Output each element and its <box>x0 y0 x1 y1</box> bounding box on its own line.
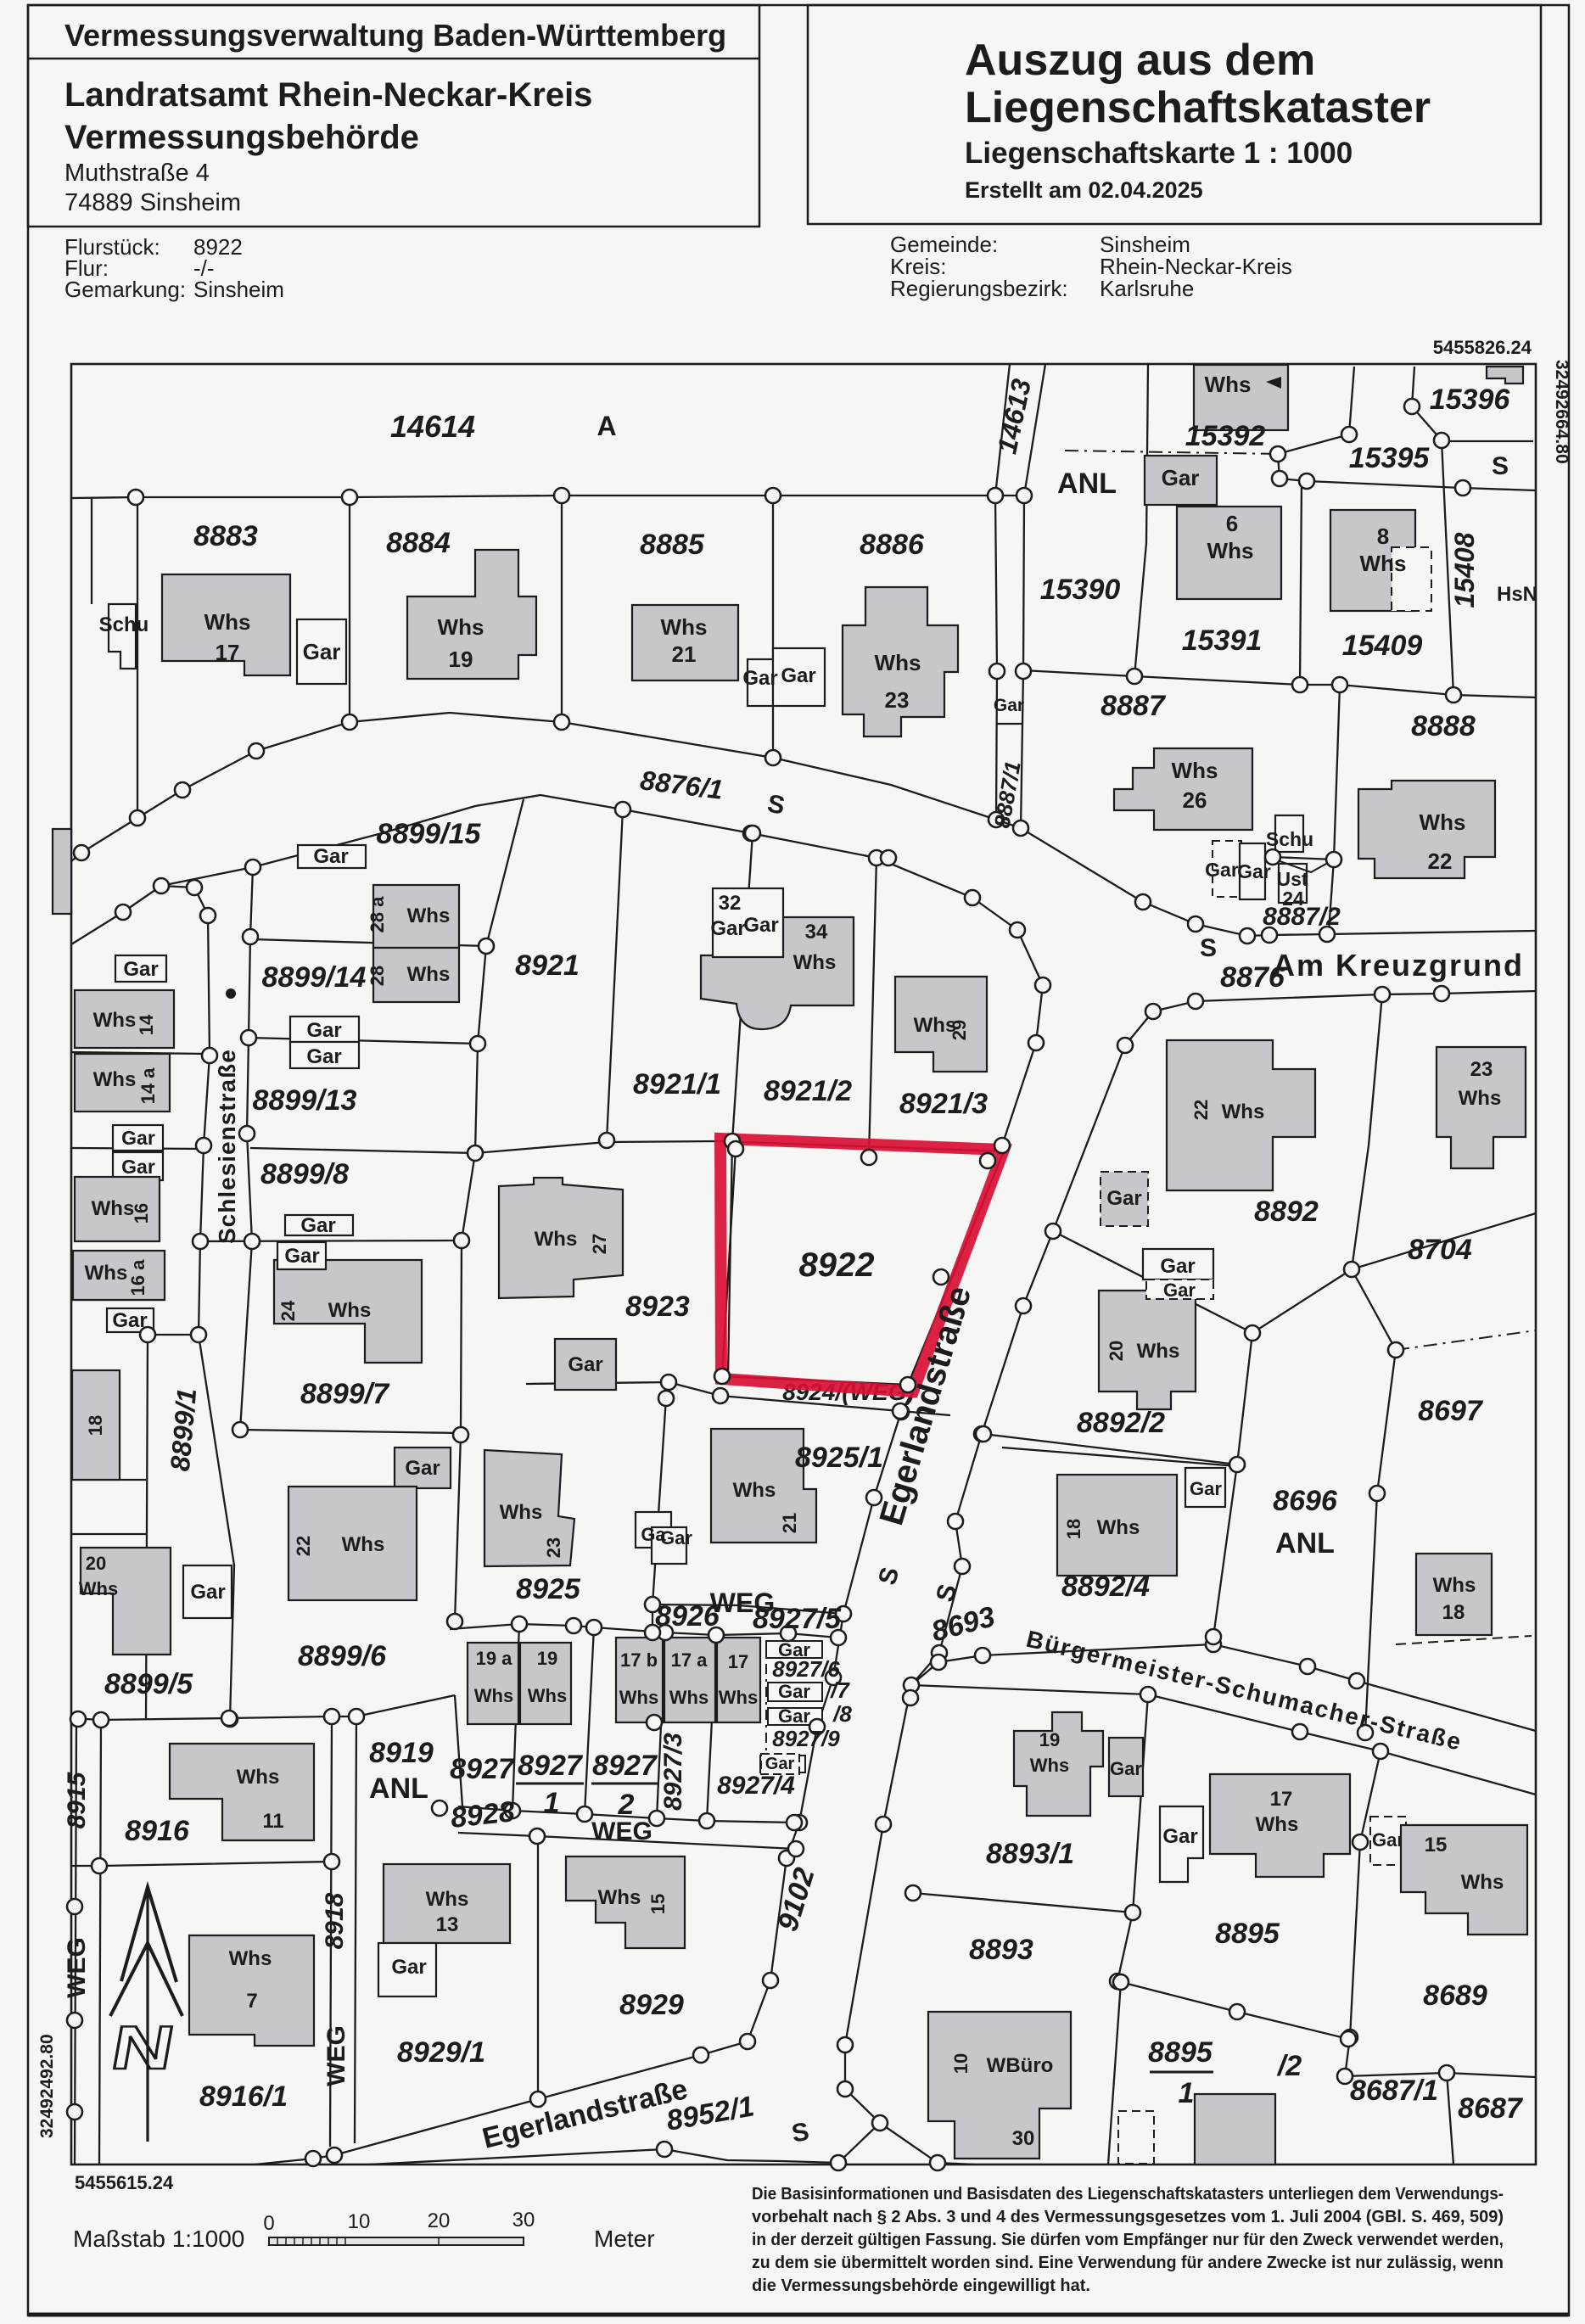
svg-text:18: 18 <box>1442 1601 1465 1624</box>
svg-text:Gar: Gar <box>1162 465 1200 490</box>
svg-text:14614: 14614 <box>390 409 475 444</box>
svg-text:HsN: HsN <box>1497 583 1537 606</box>
svg-text:Gar: Gar <box>1162 1825 1197 1848</box>
svg-text:Whs: Whs <box>500 1501 543 1524</box>
svg-text:Meter: Meter <box>594 2226 655 2252</box>
svg-text:N: N <box>106 2013 180 2081</box>
svg-text:Whs: Whs <box>733 1479 776 1502</box>
svg-text:32: 32 <box>719 892 742 915</box>
svg-text:vorbehalt nach § 2 Abs. 3 und: vorbehalt nach § 2 Abs. 3 und 4 des Verm… <box>752 2208 1504 2226</box>
svg-text:8927/5: 8927/5 <box>753 1603 842 1635</box>
svg-text:Gar: Gar <box>1190 1478 1222 1499</box>
svg-text:8925: 8925 <box>516 1573 581 1605</box>
svg-text:Whs: Whs <box>1256 1813 1299 1836</box>
svg-text:WEG: WEG <box>591 1817 652 1845</box>
svg-text:zu dem sie übermittelt worden: zu dem sie übermittelt worden sind. Eine… <box>752 2254 1504 2272</box>
svg-text:die Vermessungsbehörde eingewi: die Vermessungsbehörde eingewilligt hat. <box>752 2276 1090 2295</box>
svg-text:Whs: Whs <box>85 1262 128 1285</box>
svg-text:8887: 8887 <box>1101 690 1167 722</box>
svg-text:Gar: Gar <box>1372 1829 1404 1851</box>
svg-text:Gar: Gar <box>568 1353 602 1376</box>
svg-text:Gar: Gar <box>743 914 778 937</box>
svg-text:8921/1: 8921/1 <box>633 1068 721 1100</box>
svg-text:17: 17 <box>216 640 240 665</box>
svg-text:10: 10 <box>950 2053 972 2074</box>
svg-text:8899/7: 8899/7 <box>300 1378 390 1410</box>
svg-text:21: 21 <box>779 1513 800 1533</box>
svg-text:Gar: Gar <box>1205 859 1239 881</box>
svg-text:26: 26 <box>1183 787 1207 813</box>
svg-text:30: 30 <box>512 2209 535 2232</box>
svg-text:Gar: Gar <box>778 1681 810 1702</box>
svg-text:19: 19 <box>449 647 473 672</box>
svg-text:27: 27 <box>589 1234 610 1254</box>
svg-text:Gar: Gar <box>121 1156 155 1178</box>
svg-text:20: 20 <box>86 1553 106 1574</box>
svg-text:Gar: Gar <box>303 639 341 664</box>
svg-text:Gar: Gar <box>300 1214 335 1237</box>
svg-text:Muthstraße 4: Muthstraße 4 <box>64 160 210 187</box>
svg-text:8916: 8916 <box>125 1815 190 1847</box>
svg-text:8915: 8915 <box>63 1771 91 1828</box>
svg-text:Gar: Gar <box>313 845 348 868</box>
svg-text:Whs: Whs <box>204 609 251 635</box>
svg-text:Whs: Whs <box>237 1766 280 1789</box>
svg-text:Die Basisinformationen und Bas: Die Basisinformationen und Basisdaten de… <box>752 2185 1504 2204</box>
svg-text:7: 7 <box>246 1990 257 2013</box>
svg-text:S: S <box>1492 452 1509 480</box>
svg-text:Whs: Whs <box>528 1685 567 1706</box>
svg-text:22: 22 <box>1428 848 1453 874</box>
svg-text:5455615.24: 5455615.24 <box>75 2172 174 2193</box>
svg-text:Whs: Whs <box>1459 1087 1502 1110</box>
svg-text:Whs: Whs <box>1433 1574 1476 1597</box>
svg-text:28: 28 <box>367 966 388 986</box>
svg-text:Whs: Whs <box>1420 809 1466 835</box>
svg-text:15390: 15390 <box>1040 574 1121 606</box>
svg-text:Whs: Whs <box>1360 551 1407 576</box>
svg-text:8704: 8704 <box>1408 1234 1472 1266</box>
svg-text:8884: 8884 <box>386 527 451 559</box>
svg-text:0: 0 <box>263 2212 274 2235</box>
svg-text:Gar: Gar <box>1237 860 1271 882</box>
svg-text:Gar: Gar <box>405 1457 440 1480</box>
svg-text:15408: 15408 <box>1449 532 1480 608</box>
svg-text:Regierungsbezirk:: Regierungsbezirk: <box>890 276 1068 301</box>
svg-text:24: 24 <box>277 1300 299 1321</box>
svg-text:Liegenschaftskarte 1 : 1000: Liegenschaftskarte 1 : 1000 <box>965 137 1353 170</box>
svg-text:8887/2: 8887/2 <box>1263 903 1341 931</box>
svg-text:8899/15: 8899/15 <box>377 818 482 850</box>
svg-text:Gar: Gar <box>190 1581 225 1604</box>
svg-text:/7: /7 <box>830 1677 850 1703</box>
svg-text:19: 19 <box>537 1648 557 1669</box>
svg-text:Whs: Whs <box>719 1687 758 1708</box>
svg-text:Whs: Whs <box>1207 538 1254 563</box>
svg-text:8899/6: 8899/6 <box>298 1640 387 1672</box>
svg-text:8689: 8689 <box>1423 1980 1487 2012</box>
svg-text:8893: 8893 <box>969 1934 1033 1966</box>
svg-text:Whs: Whs <box>438 614 484 640</box>
svg-text:8927: 8927 <box>518 1750 584 1782</box>
svg-text:8927: 8927 <box>592 1750 658 1782</box>
svg-text:Gar: Gar <box>994 696 1024 715</box>
svg-text:8921/2: 8921/2 <box>764 1075 852 1107</box>
svg-text:8929/1: 8929/1 <box>397 2036 485 2069</box>
svg-text:8927: 8927 <box>450 1753 516 1785</box>
svg-text:23: 23 <box>1470 1058 1493 1081</box>
svg-text:ANL: ANL <box>1275 1527 1335 1560</box>
svg-text:15392: 15392 <box>1185 420 1266 452</box>
svg-text:Whs: Whs <box>1137 1340 1180 1363</box>
svg-text:8899/14: 8899/14 <box>262 961 367 994</box>
svg-text:Whs: Whs <box>93 1068 137 1091</box>
svg-text:18: 18 <box>1063 1519 1084 1539</box>
svg-text:Whs: Whs <box>79 1578 118 1599</box>
svg-text:8893/1: 8893/1 <box>986 1838 1074 1870</box>
svg-text:Gar: Gar <box>306 1045 341 1068</box>
svg-text:Whs: Whs <box>328 1299 372 1322</box>
svg-text:1: 1 <box>544 1787 560 1819</box>
svg-text:A: A <box>596 411 616 441</box>
svg-text:Whs: Whs <box>1461 1871 1504 1894</box>
svg-text:Whs: Whs <box>407 904 451 927</box>
svg-text:8927/3: 8927/3 <box>659 1733 687 1811</box>
svg-text:15395: 15395 <box>1349 442 1431 474</box>
svg-text:13: 13 <box>436 1913 459 1936</box>
svg-text:Maßstab 1:1000: Maßstab 1:1000 <box>73 2226 244 2252</box>
svg-text:8: 8 <box>1377 524 1389 549</box>
svg-text:Gar: Gar <box>121 1127 155 1149</box>
svg-text:8895: 8895 <box>1215 1918 1280 1950</box>
svg-text:20: 20 <box>1106 1341 1127 1361</box>
svg-text:Whs: Whs <box>342 1533 385 1556</box>
svg-text:Whs: Whs <box>229 1947 272 1970</box>
svg-text:15409: 15409 <box>1342 630 1423 662</box>
svg-text:22: 22 <box>1190 1100 1212 1120</box>
svg-text:8687/1: 8687/1 <box>1350 2075 1438 2107</box>
svg-text:Gar: Gar <box>306 1019 341 1042</box>
svg-text:WBüro: WBüro <box>987 2054 1054 2077</box>
svg-text:14: 14 <box>136 1014 157 1035</box>
svg-text:15: 15 <box>1425 1834 1448 1856</box>
svg-text:8883: 8883 <box>193 520 258 552</box>
svg-text:/8: /8 <box>832 1701 852 1727</box>
svg-text:17: 17 <box>1270 1788 1293 1811</box>
svg-text:Whs: Whs <box>1205 372 1252 397</box>
svg-text:Whs: Whs <box>535 1228 578 1251</box>
svg-text:Vermessungsbehörde: Vermessungsbehörde <box>64 119 419 156</box>
svg-text:15: 15 <box>647 1894 669 1914</box>
svg-text:8885: 8885 <box>640 529 705 561</box>
svg-text:WEG: WEG <box>322 2025 350 2086</box>
svg-text:8921: 8921 <box>515 949 580 982</box>
svg-text:8697: 8697 <box>1418 1395 1484 1427</box>
svg-text:8899/13: 8899/13 <box>253 1084 357 1117</box>
svg-text:23: 23 <box>885 687 910 713</box>
svg-text:29: 29 <box>949 1020 970 1040</box>
svg-text:32492492.80: 32492492.80 <box>37 2034 57 2138</box>
svg-text:22: 22 <box>293 1536 314 1556</box>
svg-text:8919: 8919 <box>369 1737 434 1769</box>
svg-text:28 a: 28 a <box>367 896 388 933</box>
svg-text:Gar: Gar <box>660 1527 692 1548</box>
svg-text:8892: 8892 <box>1254 1196 1319 1228</box>
svg-text:Whs: Whs <box>474 1685 513 1706</box>
svg-text:16 a: 16 a <box>127 1259 148 1296</box>
svg-text:Gar: Gar <box>781 664 815 687</box>
svg-text:5455826.24: 5455826.24 <box>1433 337 1532 358</box>
svg-text:6: 6 <box>1226 511 1238 536</box>
svg-text:Schlesienstraße: Schlesienstraße <box>214 1049 240 1244</box>
svg-text:Am Kreuzgrund: Am Kreuzgrund <box>1273 948 1524 983</box>
svg-text:ANL: ANL <box>369 1772 428 1805</box>
svg-text:S: S <box>1200 934 1217 962</box>
svg-text:20: 20 <box>428 2209 451 2232</box>
svg-text:Gar: Gar <box>1163 1280 1196 1301</box>
svg-text:8892/2: 8892/2 <box>1077 1407 1165 1439</box>
svg-text:Whs: Whs <box>93 1009 137 1032</box>
svg-text:8918: 8918 <box>321 1892 349 1949</box>
svg-text:21: 21 <box>672 641 697 667</box>
svg-text:8899/5: 8899/5 <box>104 1668 193 1700</box>
svg-text:Whs: Whs <box>1222 1100 1265 1123</box>
svg-text:Liegenschaftskataster: Liegenschaftskataster <box>965 83 1431 132</box>
svg-text:Sinsheim: Sinsheim <box>193 277 284 302</box>
svg-text:8916/1: 8916/1 <box>199 2080 288 2113</box>
svg-text:17: 17 <box>728 1651 748 1672</box>
svg-text:Schu: Schu <box>1266 828 1313 850</box>
svg-text:8927/9: 8927/9 <box>772 1726 840 1751</box>
svg-text:15391: 15391 <box>1182 624 1263 657</box>
svg-text:Whs: Whs <box>669 1687 708 1708</box>
svg-text:Whs: Whs <box>1097 1516 1140 1539</box>
svg-text:ANL: ANL <box>1057 468 1117 500</box>
svg-text:8696: 8696 <box>1273 1485 1338 1517</box>
svg-text:15396: 15396 <box>1430 384 1511 416</box>
svg-text:8927/4: 8927/4 <box>717 1772 795 1800</box>
svg-text:8895: 8895 <box>1148 2036 1213 2069</box>
svg-text:8876: 8876 <box>1220 961 1285 994</box>
svg-text:19 a: 19 a <box>476 1648 513 1669</box>
svg-text:8928: 8928 <box>449 1795 516 1834</box>
svg-text:17 b: 17 b <box>620 1649 658 1671</box>
svg-text:Karlsruhe: Karlsruhe <box>1100 276 1194 301</box>
svg-text:in der derzeit gültigen Fassun: in der derzeit gültigen Fassung. Sie dür… <box>752 2231 1504 2249</box>
svg-text:8888: 8888 <box>1411 710 1476 742</box>
svg-text:8922: 8922 <box>799 1246 875 1284</box>
svg-text:Gar: Gar <box>765 1755 795 1773</box>
svg-text:Whs: Whs <box>407 963 451 986</box>
svg-text:74889 Sinsheim: 74889 Sinsheim <box>64 189 241 216</box>
svg-text:Gar: Gar <box>391 1956 426 1979</box>
svg-text:Auszug aus dem: Auszug aus dem <box>965 36 1315 85</box>
svg-text:16: 16 <box>131 1203 152 1224</box>
svg-text:Whs: Whs <box>1172 758 1218 783</box>
svg-text:8899/8: 8899/8 <box>260 1158 349 1190</box>
svg-text:1: 1 <box>1179 2077 1195 2109</box>
svg-text:Gar: Gar <box>778 1705 810 1727</box>
svg-text:Whs: Whs <box>793 951 837 974</box>
svg-text:8886: 8886 <box>860 529 925 561</box>
svg-text:8923: 8923 <box>625 1291 690 1323</box>
svg-text:Gar: Gar <box>1110 1758 1142 1779</box>
svg-text:10: 10 <box>348 2210 371 2233</box>
svg-text:Gar: Gar <box>284 1245 319 1268</box>
svg-text:Vermessungsverwaltung Baden-Wü: Vermessungsverwaltung Baden-Württemberg <box>64 18 726 53</box>
svg-text:8925/1: 8925/1 <box>795 1442 883 1474</box>
svg-text:Gar: Gar <box>710 917 745 940</box>
svg-text:Whs: Whs <box>661 614 708 640</box>
svg-text:8892/4: 8892/4 <box>1061 1571 1150 1603</box>
svg-text:WEG: WEG <box>63 1937 91 1998</box>
svg-text:Gar: Gar <box>742 667 777 690</box>
svg-text:8921/3: 8921/3 <box>899 1088 988 1120</box>
svg-text:2: 2 <box>618 1789 635 1821</box>
svg-text:14 a: 14 a <box>137 1067 159 1105</box>
svg-text:18: 18 <box>85 1415 106 1436</box>
svg-text:17 a: 17 a <box>671 1649 708 1671</box>
svg-text:/2: /2 <box>1276 2050 1302 2082</box>
svg-text:Schu: Schu <box>99 613 149 636</box>
svg-text:11: 11 <box>262 1810 283 1833</box>
svg-text:8929: 8929 <box>619 1989 684 2021</box>
svg-text:32492664.80: 32492664.80 <box>1552 360 1571 464</box>
svg-text:Erstellt am 02.04.2025: Erstellt am 02.04.2025 <box>965 177 1203 203</box>
svg-text:Whs: Whs <box>598 1886 641 1909</box>
svg-text:Gar: Gar <box>1106 1187 1141 1210</box>
svg-text:Gemarkung:: Gemarkung: <box>64 277 186 302</box>
svg-text:Whs: Whs <box>92 1197 135 1220</box>
svg-text:Whs: Whs <box>426 1888 469 1911</box>
svg-text:30: 30 <box>1012 2127 1035 2150</box>
svg-text:Whs: Whs <box>1030 1755 1069 1776</box>
svg-text:Landratsamt Rhein-Neckar-Kreis: Landratsamt Rhein-Neckar-Kreis <box>64 76 592 114</box>
svg-text:Whs: Whs <box>875 650 921 675</box>
svg-text:Gar: Gar <box>123 958 158 981</box>
svg-text:Whs: Whs <box>619 1687 658 1708</box>
svg-text:8687: 8687 <box>1458 2092 1524 2125</box>
svg-text:23: 23 <box>543 1537 564 1558</box>
svg-text:34: 34 <box>805 921 828 944</box>
svg-text:19: 19 <box>1039 1729 1060 1750</box>
svg-text:Gar: Gar <box>1160 1255 1195 1278</box>
